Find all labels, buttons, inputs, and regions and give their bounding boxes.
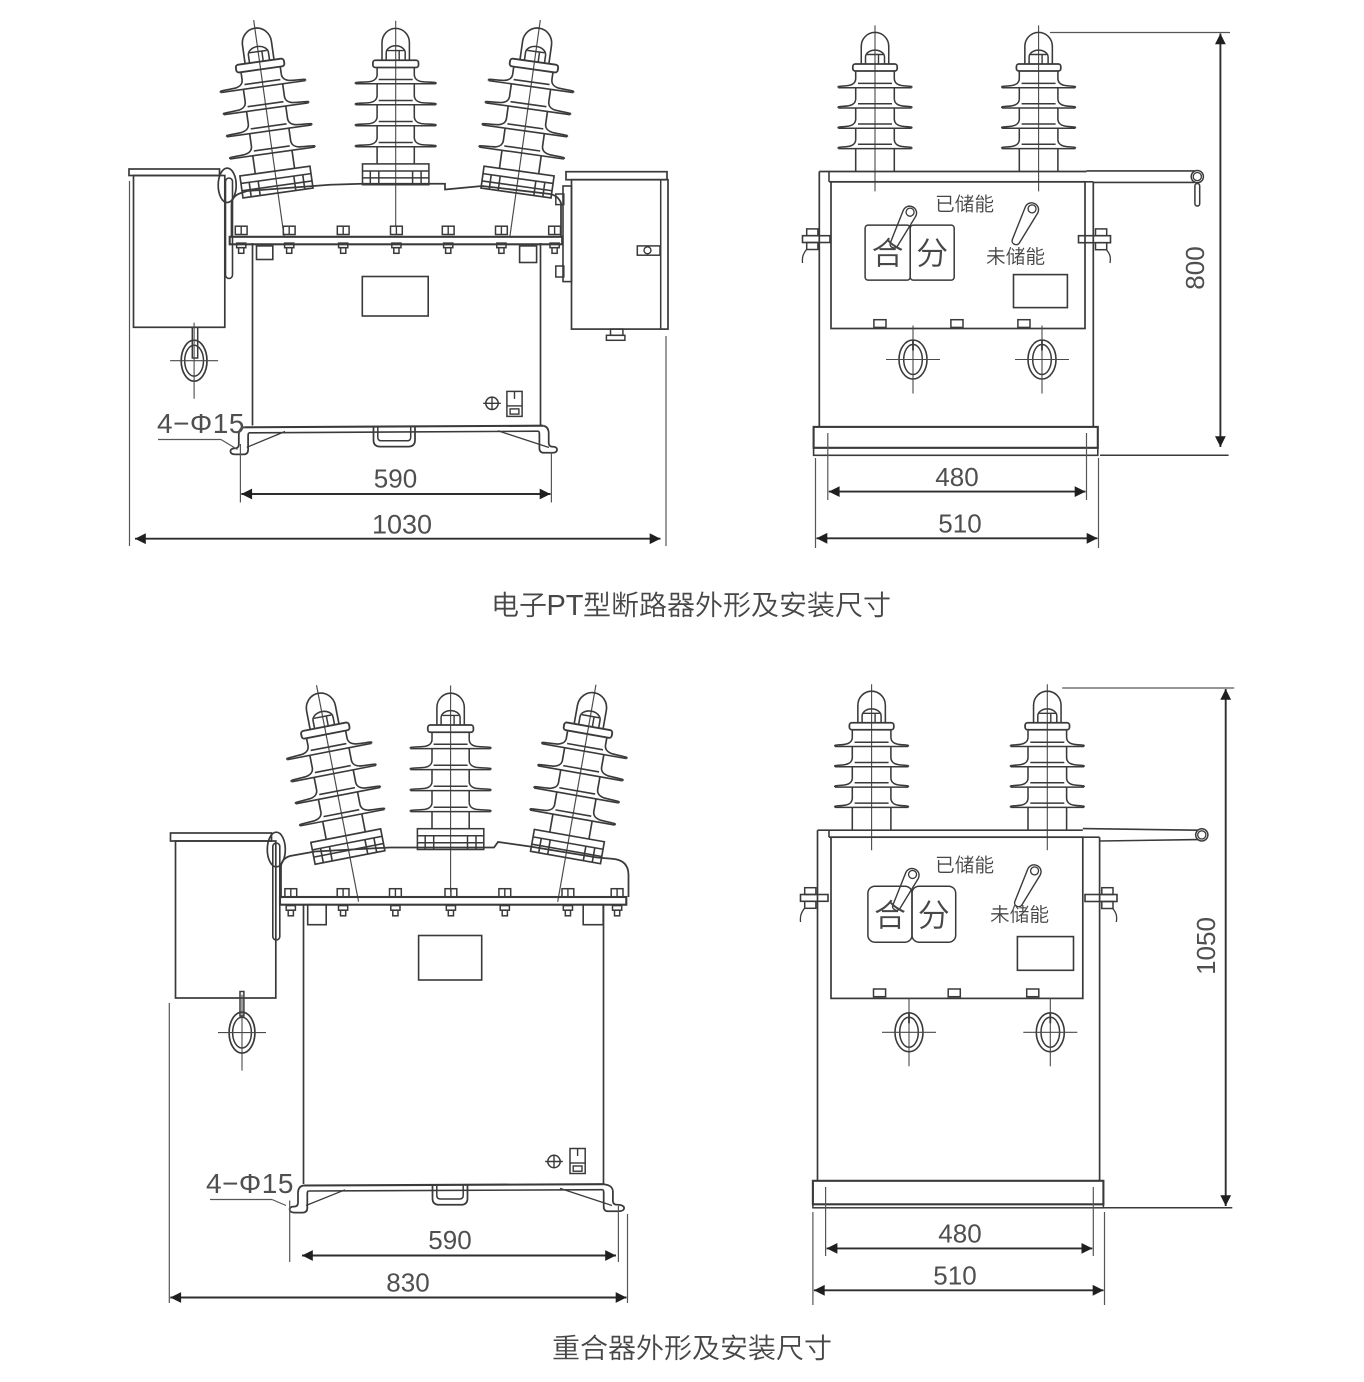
svg-text:4−Φ15: 4−Φ15: [157, 408, 245, 439]
svg-text:PT: PT: [546, 590, 583, 622]
svg-text:1030: 1030: [372, 510, 432, 540]
svg-text:480: 480: [938, 1219, 981, 1249]
svg-text:590: 590: [428, 1225, 471, 1255]
svg-text:480: 480: [935, 462, 978, 492]
svg-text:590: 590: [374, 464, 417, 494]
svg-text:510: 510: [933, 1261, 976, 1291]
svg-text:830: 830: [386, 1268, 429, 1298]
svg-text:4−Φ15: 4−Φ15: [206, 1168, 294, 1199]
svg-text:1050: 1050: [1191, 917, 1221, 975]
svg-text:510: 510: [938, 509, 981, 539]
svg-text:800: 800: [1180, 246, 1210, 289]
